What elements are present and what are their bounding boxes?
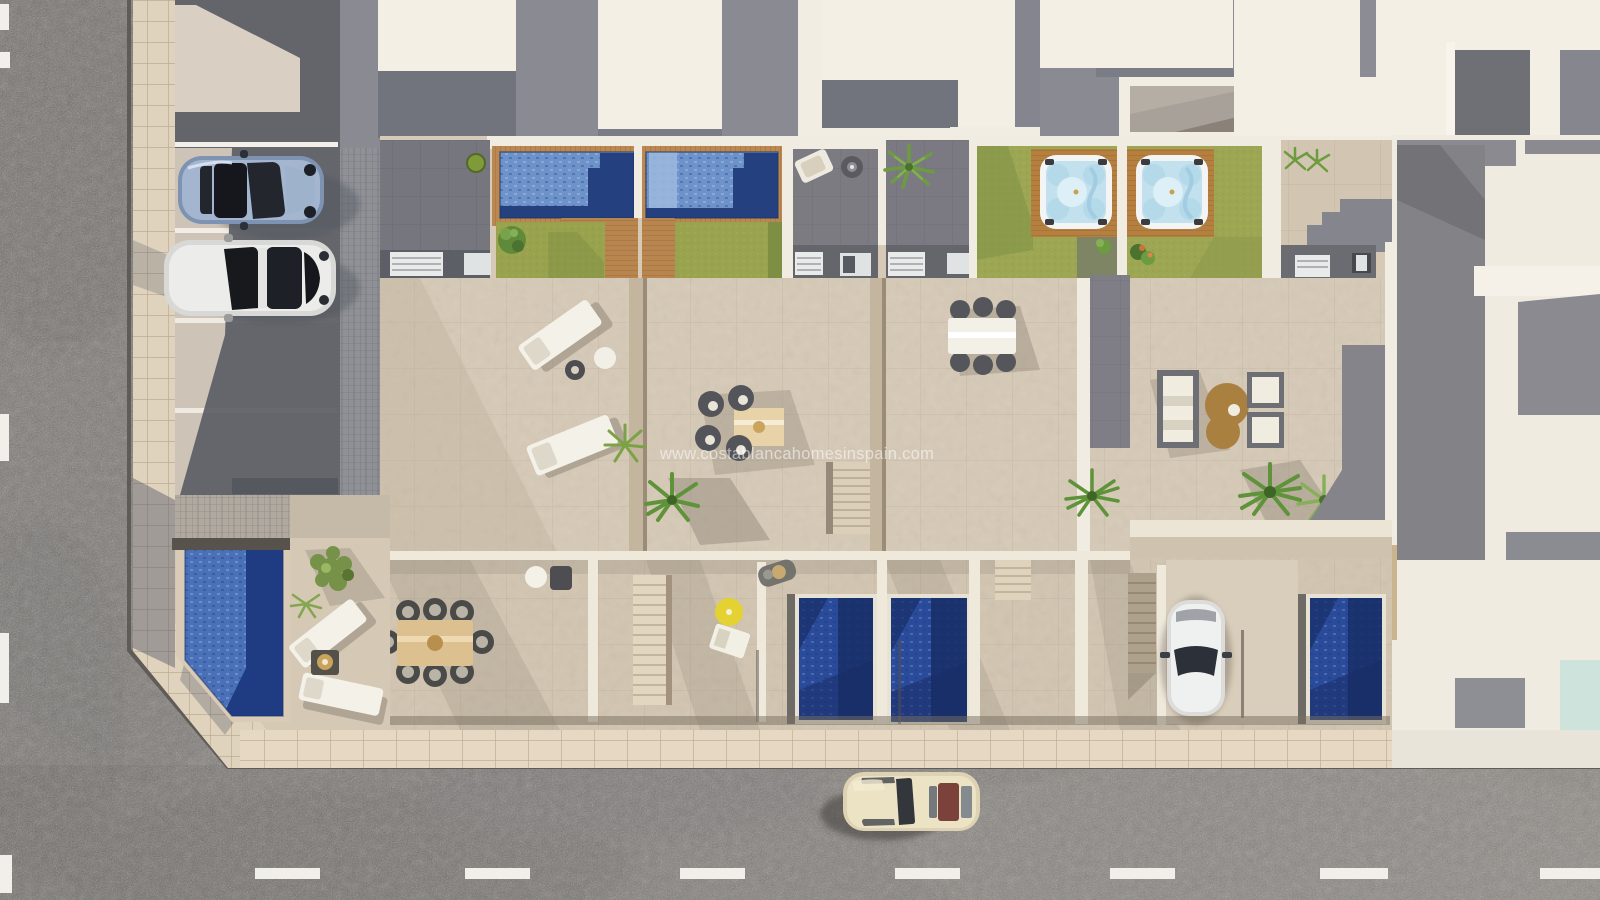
svg-text:www.costablancahomesinspain.co: www.costablancahomesinspain.com: [659, 445, 934, 463]
